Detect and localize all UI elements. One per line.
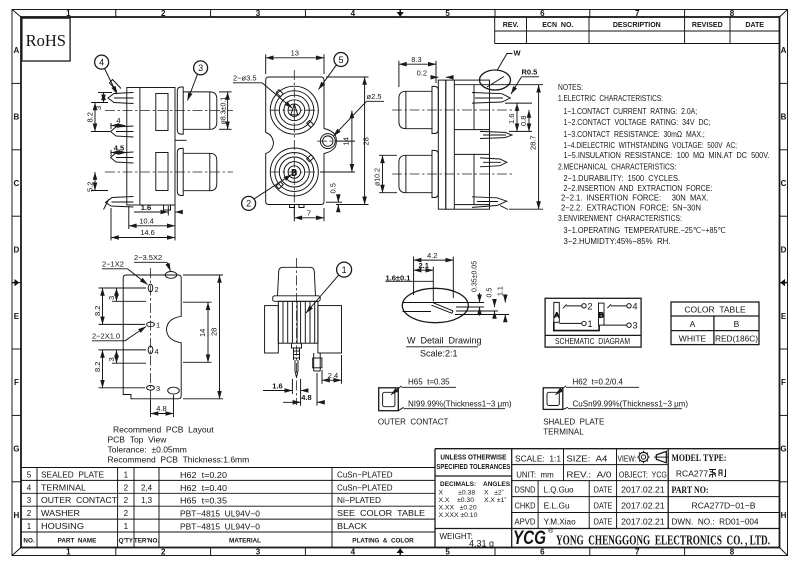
- svg-text:13: 13: [291, 49, 299, 58]
- svg-text:2: 2: [155, 285, 159, 294]
- svg-text:DATE: DATE: [594, 501, 613, 511]
- svg-text:A: A: [690, 319, 696, 329]
- svg-text:NI99.99%(Thickness1~3 μm): NI99.99%(Thickness1~3 μm): [408, 400, 512, 409]
- svg-text:2: 2: [27, 509, 32, 518]
- svg-text:4: 4: [633, 301, 638, 311]
- svg-text:H65 t=0.35: H65 t=0.35: [408, 378, 450, 387]
- svg-text:5: 5: [445, 9, 450, 18]
- svg-text:1.ELECTRIC CHARACTERISTICS:: 1.ELECTRIC CHARACTERISTICS:: [558, 94, 663, 103]
- svg-text:8: 8: [730, 9, 735, 18]
- svg-text:DATE: DATE: [594, 485, 613, 495]
- svg-text:1.6: 1.6: [507, 114, 516, 124]
- svg-text:4: 4: [99, 57, 104, 67]
- svg-text:H62 t=0.2/0.4: H62 t=0.2/0.4: [573, 378, 624, 387]
- svg-text:DSND: DSND: [515, 485, 536, 495]
- svg-text:1: 1: [588, 319, 593, 329]
- svg-text:H: H: [781, 511, 787, 520]
- svg-text:3: 3: [156, 384, 160, 393]
- svg-text:28: 28: [210, 328, 219, 336]
- svg-text:NO.: NO.: [23, 538, 34, 545]
- svg-text:5.2: 5.2: [86, 182, 95, 192]
- svg-text:8.2: 8.2: [93, 362, 102, 372]
- svg-text:W: W: [514, 49, 522, 58]
- svg-text:1: 1: [124, 522, 129, 531]
- svg-text:MODEL TYPE:: MODEL TYPE:: [672, 453, 727, 463]
- svg-text:A: A: [554, 311, 559, 320]
- svg-text:WEIGHT:: WEIGHT:: [440, 532, 473, 541]
- svg-text:2−1X2: 2−1X2: [102, 260, 124, 269]
- svg-text:G: G: [13, 445, 19, 454]
- svg-text:6: 6: [540, 9, 545, 18]
- svg-text:1: 1: [124, 470, 129, 479]
- svg-text:X ±0.38: X ±0.38: [439, 490, 476, 497]
- svg-text:BLACK: BLACK: [337, 522, 368, 531]
- svg-text:10.4: 10.4: [139, 217, 154, 226]
- svg-text:0.2: 0.2: [417, 69, 427, 78]
- svg-text:X.XXX ±0.10: X.XXX ±0.10: [439, 512, 478, 519]
- svg-text:A: A: [14, 46, 20, 55]
- svg-text:CHKD: CHKD: [515, 501, 536, 511]
- svg-text:Recommend PCB Layout: Recommend PCB Layout: [113, 425, 214, 435]
- svg-text:ø2.5: ø2.5: [367, 92, 382, 101]
- svg-text:14: 14: [342, 137, 351, 145]
- svg-text:YONG CHENGGONG ELECTRONICS: YONG CHENGGONG ELECTRONICS CO. , LTD.: [556, 533, 770, 548]
- svg-text:4.5: 4.5: [114, 144, 124, 153]
- svg-text:Y.M.Xiao: Y.M.Xiao: [544, 517, 576, 527]
- svg-text:COLOR TABLE: COLOR TABLE: [684, 305, 746, 315]
- svg-text:ANGLES:: ANGLES:: [483, 481, 512, 488]
- svg-text:VIEW:: VIEW:: [618, 454, 637, 464]
- svg-text:X.X ±1˚: X.X ±1˚: [484, 496, 507, 504]
- svg-text:2: 2: [124, 483, 129, 492]
- svg-text:CuSn−PLATED: CuSn−PLATED: [337, 483, 393, 492]
- svg-text:DESCRIPTION: DESCRIPTION: [613, 22, 661, 29]
- svg-text:1: 1: [66, 9, 71, 18]
- svg-text:PLATING & COLOR: PLATING & COLOR: [352, 538, 414, 545]
- svg-text:Tolerance: ±0.05mm: Tolerance: ±0.05mm: [108, 445, 187, 455]
- svg-text:8.2: 8.2: [86, 112, 95, 122]
- svg-text:2017.02.21: 2017.02.21: [621, 485, 665, 495]
- svg-text:Ni−PLATED: Ni−PLATED: [337, 496, 381, 505]
- svg-text:OBJECT: YCG: OBJECT: YCG: [619, 470, 667, 480]
- svg-text:PART NAME: PART NAME: [58, 538, 97, 545]
- svg-text:1−3.CONTACT RESISTANCE: 30mΩ: 1−3.CONTACT RESISTANCE: 30mΩ MAX.;: [564, 130, 705, 139]
- svg-text:YCG: YCG: [513, 528, 546, 549]
- svg-text:APVD: APVD: [515, 517, 536, 527]
- svg-text:2017.02.21: 2017.02.21: [621, 517, 665, 527]
- svg-text:5: 5: [27, 470, 32, 479]
- svg-text:ø8.3±0.1: ø8.3±0.1: [221, 97, 228, 125]
- svg-text:UNIT: mm: UNIT: mm: [516, 470, 554, 480]
- svg-text:®: ®: [548, 527, 554, 535]
- svg-text:ECN NO.: ECN NO.: [542, 22, 573, 29]
- svg-text:4: 4: [27, 483, 32, 492]
- svg-text:RED(186C): RED(186C): [715, 334, 758, 344]
- svg-text:SPECIFIED TOLERANCES: SPECIFIED TOLERANCES: [436, 464, 510, 471]
- svg-text:Recommend PCB Thickness:1.6m: Recommend PCB Thickness:1.6mm: [108, 455, 250, 465]
- svg-text:4.31 g: 4.31 g: [469, 539, 494, 549]
- svg-text:0.5: 0.5: [329, 183, 338, 193]
- svg-text:3: 3: [94, 106, 103, 110]
- svg-text:3: 3: [256, 548, 261, 557]
- svg-text:CuSn99.99%(Thickness1~3 μm): CuSn99.99%(Thickness1~3 μm): [573, 400, 689, 409]
- svg-text:PBT−4815 UL94V−0: PBT−4815 UL94V−0: [180, 523, 261, 532]
- svg-text:X.XX ±0.20: X.XX ±0.20: [439, 505, 477, 512]
- svg-text:2−2.2. EXTRACTION FORCE: 5N: 2−2.2. EXTRACTION FORCE: 5N~30N: [561, 204, 701, 213]
- svg-text:DWN. NO.: RD01−004: DWN. NO.: RD01−004: [672, 517, 759, 527]
- svg-text:DATE: DATE: [745, 22, 764, 29]
- svg-text:PART NO:: PART NO:: [672, 485, 709, 495]
- svg-text:2: 2: [124, 496, 129, 505]
- svg-text:1: 1: [66, 548, 71, 557]
- svg-text:1: 1: [27, 522, 32, 531]
- svg-text:B: B: [14, 113, 20, 122]
- svg-text:NOTES:: NOTES:: [558, 83, 583, 92]
- svg-text:2−2.INSERTION AND EXTRACTION: 2−2.INSERTION AND EXTRACTION FORCE:: [564, 184, 713, 193]
- svg-text:H: H: [14, 511, 20, 520]
- svg-text:PBT−4815 UL94V−0: PBT−4815 UL94V−0: [180, 510, 261, 519]
- svg-text:CuSn−PLATED: CuSn−PLATED: [337, 470, 393, 479]
- svg-text:4: 4: [351, 548, 356, 557]
- svg-text:28.7: 28.7: [529, 135, 538, 150]
- svg-text:DATE: DATE: [594, 517, 613, 527]
- svg-text:TER'NO.: TER'NO.: [134, 538, 160, 545]
- svg-text:3: 3: [633, 321, 638, 331]
- svg-text:8.2: 8.2: [93, 306, 102, 316]
- svg-text:2−2.1. INSERTION FORCE:: 2−2.1. INSERTION FORCE: 30N MAX.: [561, 194, 709, 203]
- svg-text:OUTER CONTACT: OUTER CONTACT: [41, 496, 117, 505]
- svg-text:3: 3: [256, 9, 261, 18]
- svg-text:1−1.CONTACT CURRENT RATING:: 1−1.CONTACT CURRENT RATING: 2.0A;: [564, 107, 698, 116]
- svg-text:1: 1: [156, 321, 160, 330]
- svg-text:OUTER CONTACT: OUTER CONTACT: [378, 418, 449, 427]
- svg-text:A: A: [781, 46, 787, 55]
- svg-text:2.1: 2.1: [418, 261, 428, 270]
- svg-text:F: F: [14, 378, 19, 387]
- svg-text:X ±2˚: X ±2˚: [484, 489, 504, 497]
- svg-text:2−1.DURABILITY: 1500 CYCLES.: 2−1.DURABILITY: 1500 CYCLES.: [564, 174, 681, 183]
- svg-text:2: 2: [161, 548, 166, 557]
- svg-text:3.ENVIRENMENT CHARACTERISTICS: 3.ENVIRENMENT CHARACTERISTICS:: [558, 214, 682, 223]
- svg-text:PCB Top View: PCB Top View: [108, 435, 168, 445]
- svg-text:UNLESS OTHERWISE: UNLESS OTHERWISE: [440, 455, 506, 462]
- svg-text:0.35±0.05: 0.35±0.05: [472, 261, 479, 292]
- svg-text:4.8: 4.8: [301, 393, 311, 402]
- svg-text:1−4.DIELECTRIC WITHSTANDING: 1−4.DIELECTRIC WITHSTANDING VOLTAGE: 500…: [564, 141, 738, 150]
- svg-text:TERMINAL: TERMINAL: [41, 483, 87, 492]
- svg-text:2017.02.21: 2017.02.21: [621, 501, 665, 511]
- svg-text:1−2.CONTACT VOLTAGE RATING:: 1−2.CONTACT VOLTAGE RATING: 34V DC;: [564, 118, 711, 127]
- svg-text:0.5: 0.5: [487, 288, 494, 298]
- svg-text:H62 t=0.40: H62 t=0.40: [180, 484, 228, 493]
- svg-text:4: 4: [116, 116, 120, 125]
- svg-text:DECIMALS:: DECIMALS:: [440, 481, 476, 488]
- svg-text:Scale:2:1: Scale:2:1: [420, 349, 458, 359]
- svg-text:SCALE: 1:1: SCALE: 1:1: [515, 454, 561, 464]
- svg-text:2,4: 2,4: [141, 483, 153, 492]
- svg-text:E: E: [781, 312, 787, 321]
- svg-text:L.Q.Guo: L.Q.Guo: [544, 485, 574, 495]
- svg-text:1.6: 1.6: [272, 382, 282, 391]
- svg-text:SHALED PLATE: SHALED PLATE: [543, 418, 604, 427]
- svg-text:E: E: [14, 312, 20, 321]
- svg-text:7: 7: [307, 209, 311, 218]
- svg-text:2: 2: [246, 199, 251, 209]
- svg-text:3: 3: [107, 296, 116, 300]
- svg-text:SCHEMATIC DIAGRAM: SCHEMATIC DIAGRAM: [555, 336, 630, 346]
- svg-text:REV.: REV.: [503, 22, 519, 29]
- svg-text:3−1.OPERATING TEMPERATURE.−25: 3−1.OPERATING TEMPERATURE.−25℃~+85℃: [564, 226, 726, 235]
- svg-text:5: 5: [338, 55, 343, 65]
- svg-text:1,3: 1,3: [141, 496, 153, 505]
- svg-text:4: 4: [155, 347, 159, 356]
- svg-text:7: 7: [635, 548, 640, 557]
- svg-text:3−2.HUMIDTY:45%−85% RH.: 3−2.HUMIDTY:45%−85% RH.: [564, 237, 671, 246]
- svg-text:3: 3: [27, 496, 32, 505]
- svg-text:ø10.2: ø10.2: [375, 168, 382, 186]
- svg-text:TERMINAL: TERMINAL: [543, 428, 584, 437]
- svg-text:8: 8: [730, 548, 735, 557]
- svg-text:REV.: A/0: REV.: A/0: [566, 470, 611, 480]
- svg-text:2−3.5X2: 2−3.5X2: [134, 253, 162, 262]
- svg-text:1.1: 1.1: [497, 286, 504, 296]
- svg-text:2.MECHANICAL CHARACTERISTICS:: 2.MECHANICAL CHARACTERISTICS:: [558, 163, 676, 172]
- svg-text:SEE COLOR TABLE: SEE COLOR TABLE: [337, 509, 425, 518]
- svg-text:2−ø3.5: 2−ø3.5: [233, 74, 257, 83]
- svg-text:RoHS: RoHS: [26, 31, 66, 50]
- svg-text:WHITE: WHITE: [679, 334, 707, 344]
- svg-text:1: 1: [342, 265, 347, 275]
- svg-text:4: 4: [351, 9, 356, 18]
- svg-text:X.X ±0.30: X.X ±0.30: [439, 497, 475, 504]
- svg-text:W Detail Drawing: W Detail Drawing: [407, 336, 482, 346]
- svg-text:H62 t=0.20: H62 t=0.20: [180, 471, 228, 480]
- svg-text:REVISED: REVISED: [692, 22, 723, 29]
- svg-text:14.6: 14.6: [140, 228, 155, 237]
- svg-text:D: D: [781, 245, 787, 254]
- svg-text:2: 2: [124, 509, 129, 518]
- svg-text:4.2: 4.2: [427, 251, 437, 260]
- svg-text:2−2X1.0: 2−2X1.0: [92, 332, 120, 341]
- svg-text:Q'TY: Q'TY: [119, 538, 134, 545]
- svg-text:28: 28: [361, 137, 370, 145]
- svg-text:SIZE: A4: SIZE: A4: [566, 454, 607, 464]
- svg-text:B: B: [781, 113, 787, 122]
- svg-text:1−5.INSULATION RESISTANCE: 1: 1−5.INSULATION RESISTANCE: 100 MΩ MIN.AT…: [564, 151, 770, 160]
- svg-text:14: 14: [198, 329, 207, 337]
- svg-text:RCA277D−01−B: RCA277D−01−B: [692, 501, 756, 511]
- svg-text:1.6: 1.6: [141, 203, 151, 212]
- svg-text:SEALED PLATE: SEALED PLATE: [41, 470, 104, 479]
- svg-text:B: B: [599, 311, 604, 320]
- svg-text:E.L.Gu: E.L.Gu: [544, 501, 570, 511]
- svg-text:7: 7: [635, 9, 640, 18]
- svg-text:5: 5: [445, 548, 450, 557]
- svg-text:C: C: [781, 179, 787, 188]
- svg-text:RCA277: RCA277: [676, 469, 708, 479]
- svg-text:3: 3: [198, 63, 203, 73]
- svg-text:3: 3: [107, 357, 116, 361]
- svg-text:0.8: 0.8: [519, 116, 528, 126]
- svg-text:MATERIAL: MATERIAL: [229, 538, 261, 545]
- svg-text:2: 2: [161, 9, 166, 18]
- svg-text:C: C: [14, 179, 20, 188]
- svg-text:4.8: 4.8: [156, 404, 166, 413]
- svg-text:8.3: 8.3: [411, 55, 421, 64]
- svg-text:HOUSING: HOUSING: [41, 522, 84, 531]
- svg-text:R0.5: R0.5: [522, 68, 538, 77]
- svg-text:2: 2: [588, 301, 593, 311]
- svg-text:WASHER: WASHER: [41, 509, 80, 518]
- svg-text:H65 t=0.35: H65 t=0.35: [180, 497, 228, 506]
- svg-text:B: B: [734, 319, 740, 329]
- svg-text:D: D: [14, 245, 20, 254]
- svg-text:F: F: [781, 378, 786, 387]
- svg-text:G: G: [780, 445, 786, 454]
- svg-text:2.4: 2.4: [328, 371, 338, 380]
